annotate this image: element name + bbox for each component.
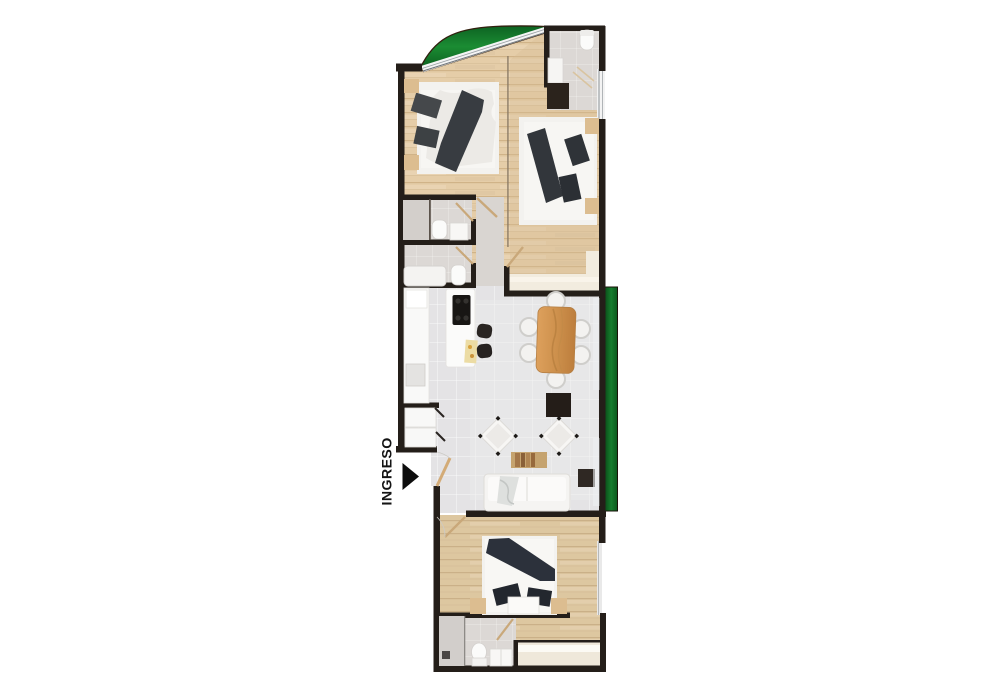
svg-text:INGRESO: INGRESO	[380, 437, 396, 505]
